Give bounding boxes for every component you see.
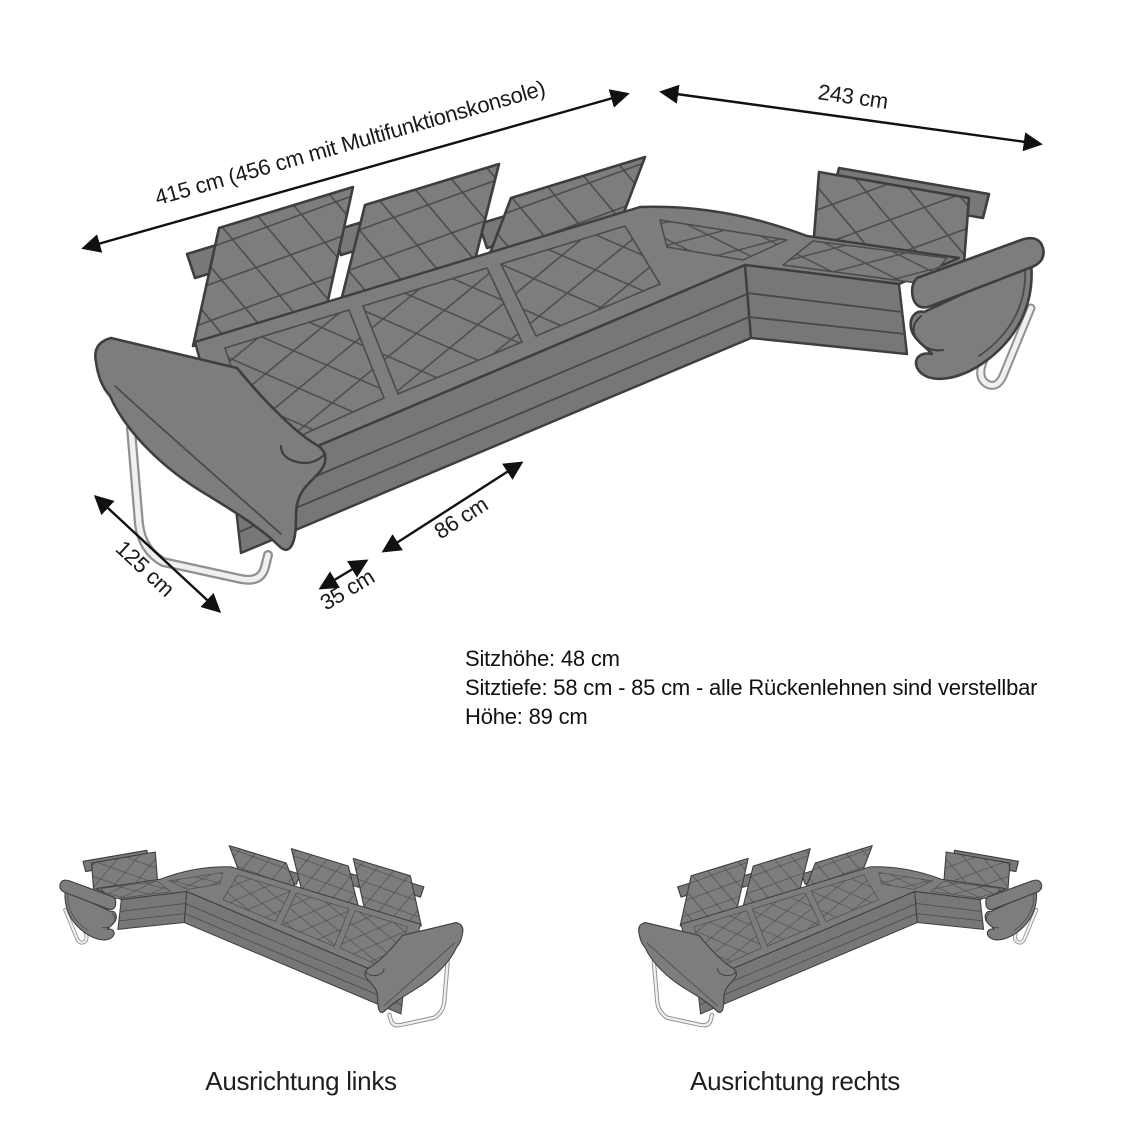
- sofa-dimension-drawing: 415 cm (456 cm mit Multifunktionskonsole…: [0, 0, 1134, 1134]
- spec-seat-height: Sitzhöhe: 48 cm: [465, 644, 1037, 673]
- spec-text-block: Sitzhöhe: 48 cm Sitztiefe: 58 cm - 85 cm…: [465, 644, 1037, 731]
- orientation-right-label: Ausrichtung rechts: [690, 1066, 900, 1097]
- variant-left-sofa-illustration: [60, 846, 463, 1026]
- product-dimension-diagram: 415 cm (456 cm mit Multifunktionskonsole…: [0, 0, 1134, 1134]
- dim-seat-width-label: 86 cm: [430, 491, 493, 544]
- main-sofa-illustration: [95, 157, 1043, 580]
- spec-seat-depth: Sitztiefe: 58 cm - 85 cm - alle Rückenle…: [465, 673, 1037, 702]
- variant-right-sofa-illustration: [639, 846, 1042, 1026]
- spec-height: Höhe: 89 cm: [465, 702, 1037, 731]
- orientation-left-label: Ausrichtung links: [205, 1066, 396, 1097]
- dim-side-length-label: 243 cm: [816, 79, 889, 113]
